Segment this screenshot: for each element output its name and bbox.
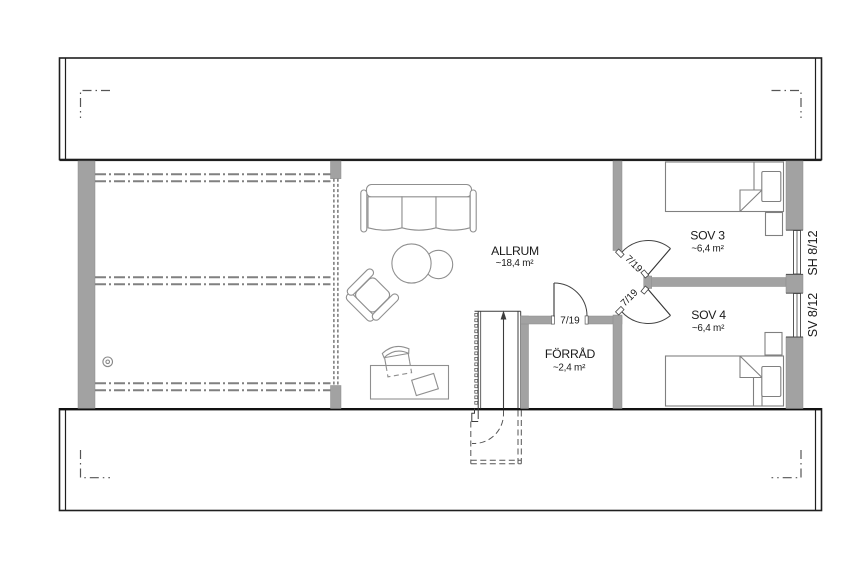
svg-text:~6,4 m²: ~6,4 m²	[692, 323, 725, 334]
svg-text:SOV 3: SOV 3	[690, 229, 725, 243]
svg-text:~6,4 m²: ~6,4 m²	[691, 244, 724, 255]
svg-text:FÖRRÅD: FÖRRÅD	[545, 346, 596, 361]
svg-text:SV 8/12: SV 8/12	[806, 293, 820, 338]
svg-text:7/19: 7/19	[560, 316, 580, 327]
svg-text:SOV 4: SOV 4	[691, 308, 726, 322]
svg-text:SH 8/12: SH 8/12	[806, 230, 820, 275]
svg-text:~2,4 m²: ~2,4 m²	[553, 362, 586, 373]
svg-text:ALLRUM: ALLRUM	[491, 244, 539, 258]
svg-text:~18,4 m²: ~18,4 m²	[496, 258, 535, 269]
